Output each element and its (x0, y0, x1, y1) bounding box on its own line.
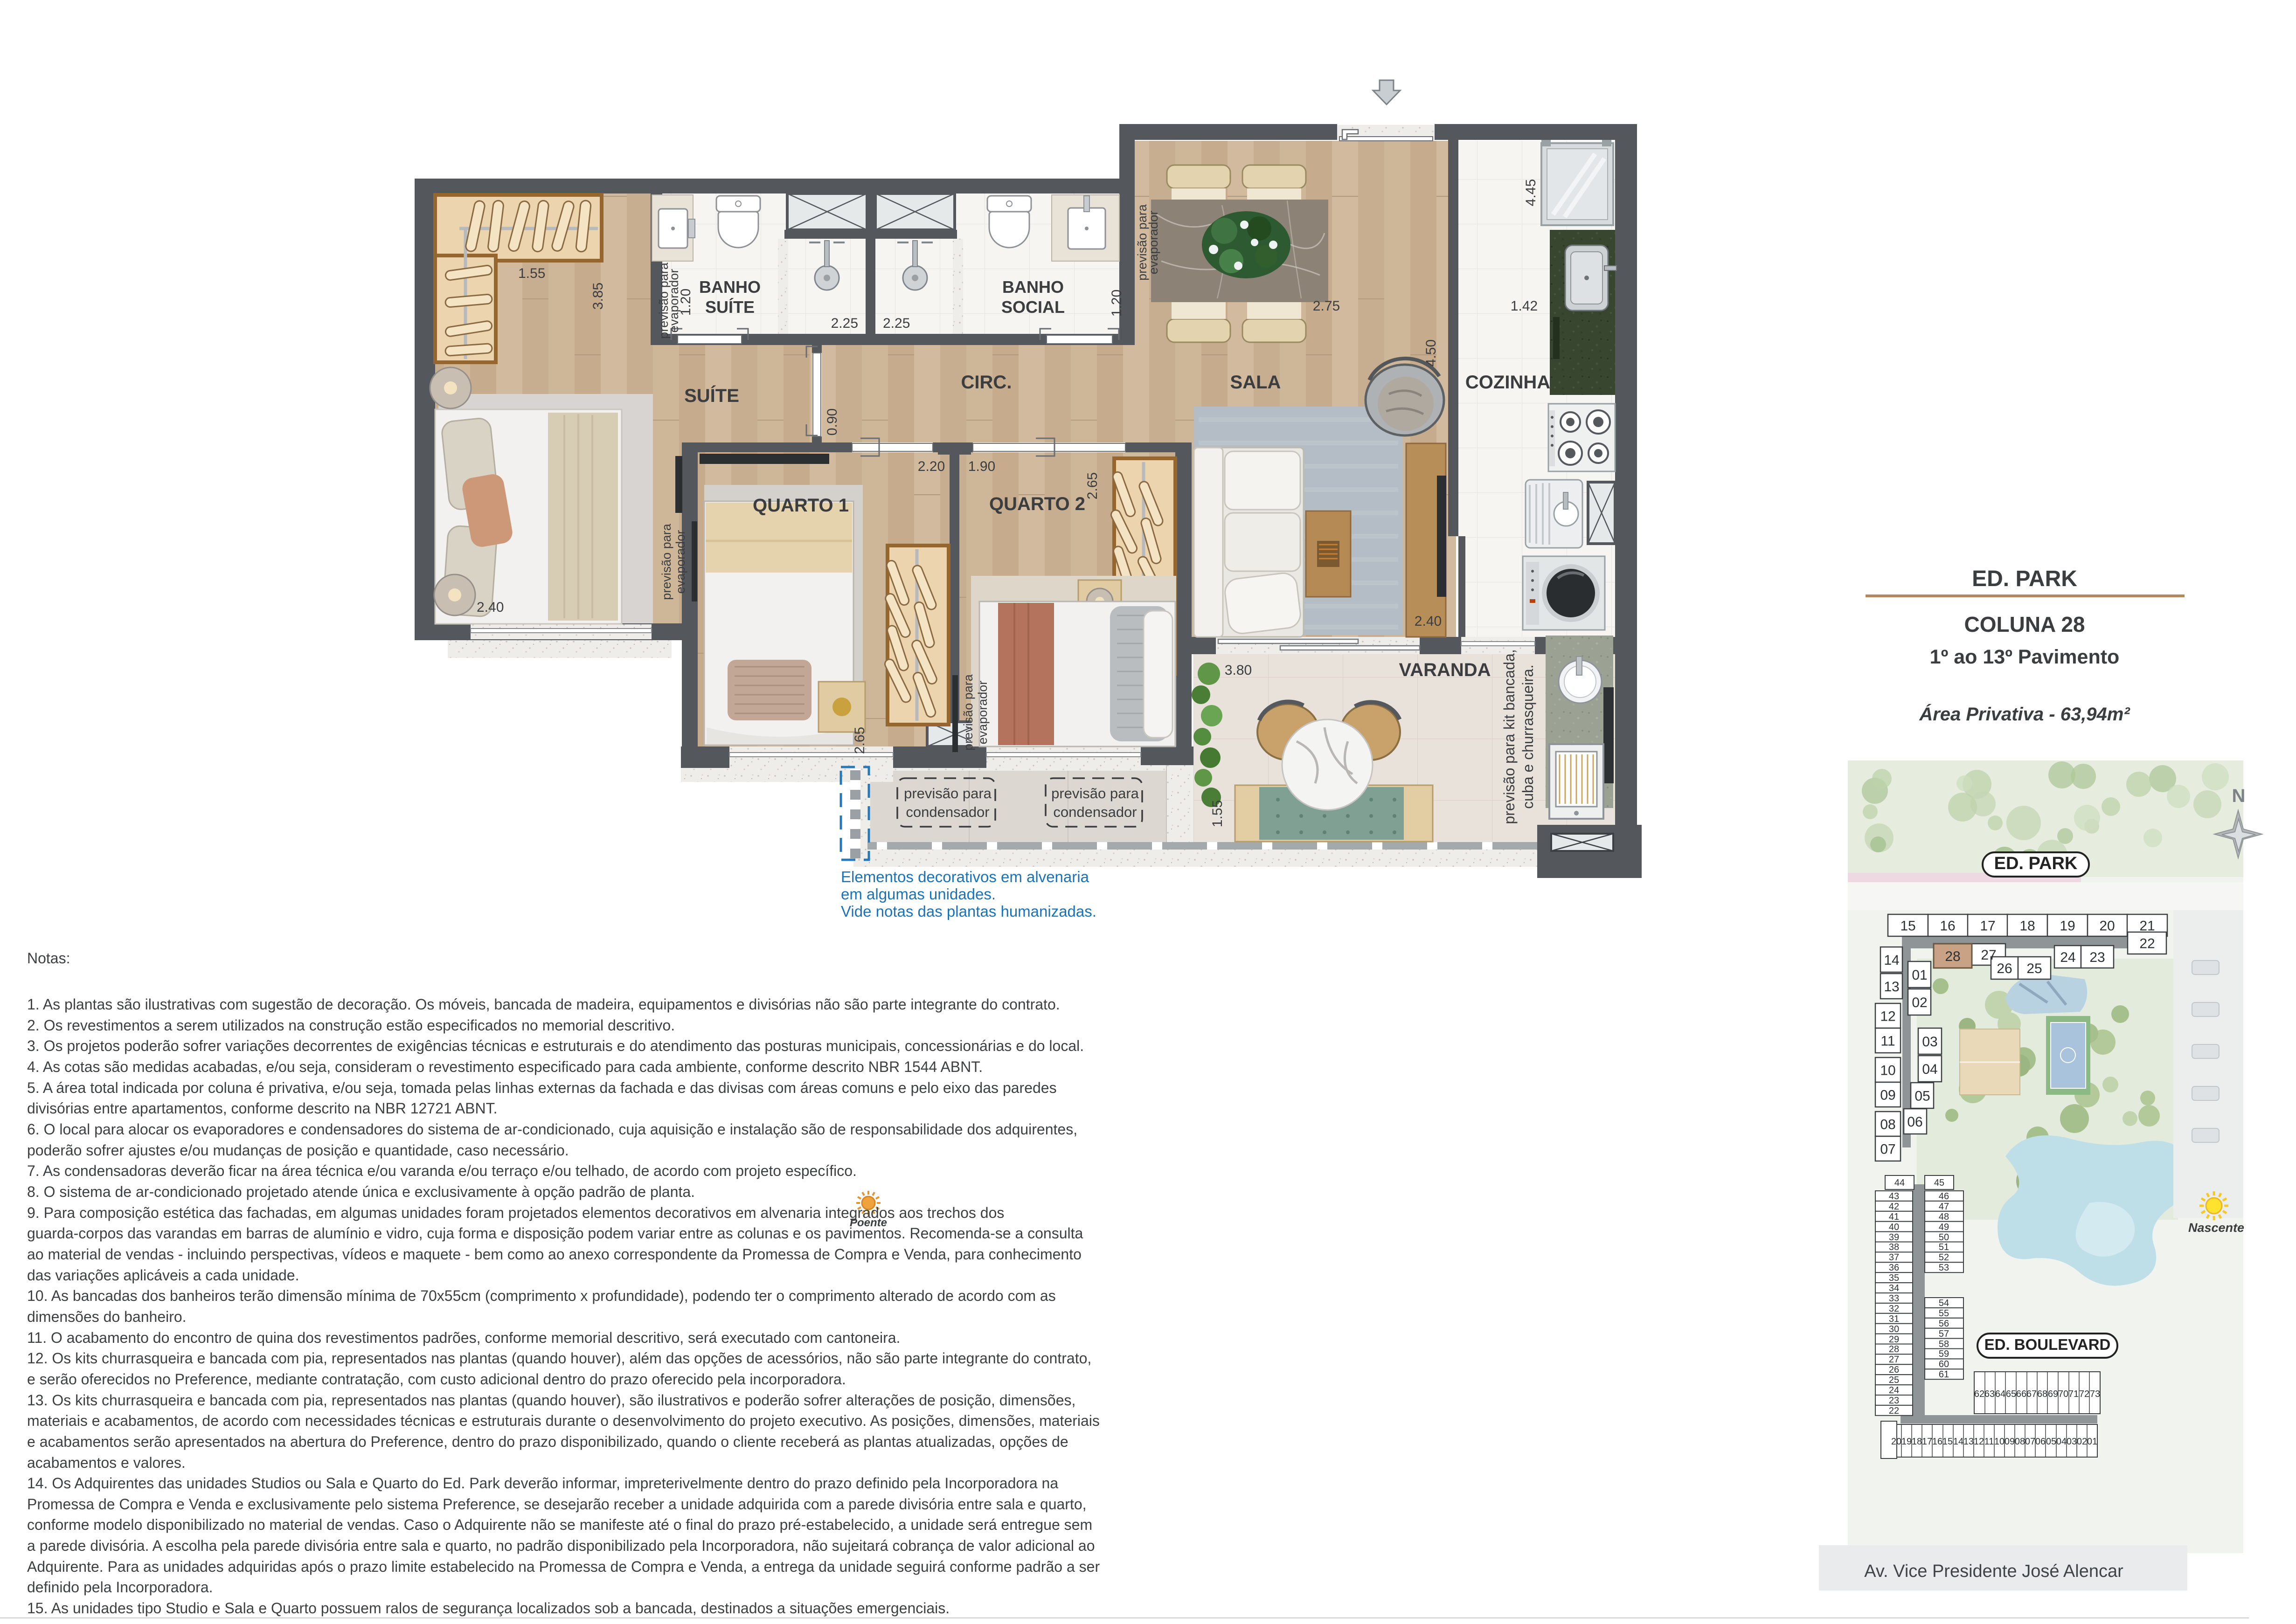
svg-text:21: 21 (2139, 919, 2155, 934)
svg-text:2.40: 2.40 (477, 600, 504, 615)
svg-text:2.75: 2.75 (1313, 298, 1340, 314)
svg-text:18: 18 (1912, 1437, 1922, 1447)
svg-text:06: 06 (1907, 1114, 1922, 1130)
svg-text:06: 06 (2035, 1437, 2046, 1447)
svg-text:cuba e churrasqueira.: cuba e churrasqueira. (1519, 664, 1536, 809)
svg-text:55: 55 (1939, 1308, 1949, 1319)
svg-text:31: 31 (1889, 1314, 1899, 1324)
svg-text:Av. Vice Presidente José Alenc: Av. Vice Presidente José Alencar (1864, 1562, 2123, 1581)
svg-text:SOCIAL: SOCIAL (1001, 297, 1065, 317)
svg-text:63: 63 (1984, 1389, 1995, 1399)
svg-text:previsão para: previsão para (1051, 785, 1139, 802)
svg-text:13: 13 (1884, 979, 1899, 995)
svg-text:18: 18 (2019, 919, 2035, 934)
svg-text:09: 09 (1880, 1088, 1895, 1103)
svg-text:24: 24 (2060, 950, 2075, 965)
svg-text:4.50: 4.50 (1423, 339, 1439, 366)
svg-text:04: 04 (1922, 1062, 1937, 1077)
svg-text:30: 30 (1889, 1324, 1899, 1334)
svg-text:60: 60 (1939, 1359, 1949, 1369)
svg-text:28: 28 (1889, 1344, 1899, 1354)
svg-text:19: 19 (2060, 919, 2075, 934)
svg-text:1º ao 13º Pavimento: 1º ao 13º Pavimento (1930, 646, 2120, 668)
svg-text:03: 03 (1922, 1034, 1937, 1050)
svg-text:4.45: 4.45 (1523, 179, 1539, 206)
svg-text:10: 10 (1880, 1063, 1895, 1078)
svg-text:1. As plantas são ilustrativas: 1. As plantas são ilustrativas com suges… (27, 996, 1060, 1013)
svg-text:acabamentos e valores.: acabamentos e valores. (27, 1454, 186, 1471)
svg-text:guarda-corpos das varandas em: guarda-corpos das varandas em barras de … (27, 1225, 1083, 1242)
svg-text:43: 43 (1889, 1191, 1899, 1202)
svg-text:17: 17 (1980, 919, 1995, 934)
svg-text:69: 69 (2048, 1389, 2058, 1399)
svg-text:08: 08 (2015, 1437, 2025, 1447)
svg-text:25: 25 (2026, 961, 2042, 976)
svg-text:58: 58 (1939, 1339, 1949, 1349)
svg-text:49: 49 (1939, 1222, 1949, 1232)
svg-text:definido pela Incorporadora.: definido pela Incorporadora. (27, 1579, 213, 1596)
svg-text:01: 01 (1912, 967, 1927, 983)
svg-text:07: 07 (1880, 1142, 1895, 1157)
svg-text:e acabamentos serão apresentad: e acabamentos serão apresentados na aber… (27, 1433, 1068, 1450)
svg-text:53: 53 (1939, 1263, 1949, 1273)
svg-text:37: 37 (1889, 1252, 1899, 1263)
svg-text:14: 14 (1884, 953, 1899, 968)
svg-text:29: 29 (1889, 1334, 1899, 1345)
svg-text:01: 01 (2087, 1437, 2097, 1447)
svg-text:0.90: 0.90 (825, 408, 840, 435)
svg-text:QUARTO 1: QUARTO 1 (753, 495, 849, 516)
svg-text:COZINHA: COZINHA (1465, 372, 1550, 393)
svg-text:previsão para: previsão para (961, 674, 975, 751)
svg-text:65: 65 (2006, 1389, 2016, 1399)
svg-text:04: 04 (2056, 1437, 2067, 1447)
svg-text:22: 22 (2139, 936, 2155, 952)
svg-text:11: 11 (1880, 1034, 1895, 1049)
svg-text:14. Os Adquirentes das unidade: 14. Os Adquirentes das unidades Studios … (27, 1475, 1058, 1492)
svg-text:62: 62 (1974, 1389, 1984, 1399)
svg-text:02: 02 (2077, 1437, 2087, 1447)
svg-text:20: 20 (1891, 1437, 1901, 1447)
svg-text:52: 52 (1939, 1252, 1949, 1263)
svg-text:10. As bancadas dos banheiros: 10. As bancadas dos banheiros terão dime… (27, 1287, 1056, 1304)
svg-text:6. O local para alocar os evap: 6. O local para alocar os evaporadores e… (27, 1121, 1077, 1138)
svg-text:10: 10 (1994, 1437, 2005, 1447)
svg-text:33: 33 (1889, 1293, 1899, 1304)
svg-text:39: 39 (1889, 1232, 1899, 1243)
svg-text:2.40: 2.40 (1415, 614, 1442, 629)
svg-text:09: 09 (2005, 1437, 2015, 1447)
svg-text:1.90: 1.90 (968, 459, 995, 474)
svg-text:SALA: SALA (1230, 372, 1281, 393)
svg-text:1.55: 1.55 (1210, 800, 1225, 827)
svg-text:BANHO: BANHO (1002, 277, 1064, 297)
svg-text:13. Os kits churrasqueira e ba: 13. Os kits churrasqueira e bancada com … (27, 1392, 1075, 1409)
svg-text:2.25: 2.25 (883, 316, 910, 331)
svg-text:3. Os projetos poderão sofrer: 3. Os projetos poderão sofrer variações … (27, 1037, 1084, 1054)
svg-text:07: 07 (2025, 1437, 2035, 1447)
svg-text:3.80: 3.80 (1225, 663, 1252, 678)
svg-text:2.65: 2.65 (852, 727, 867, 754)
svg-text:Área Privativa - 63,94m²: Área Privativa - 63,94m² (1919, 704, 2130, 725)
svg-text:51: 51 (1939, 1242, 1949, 1252)
svg-text:61: 61 (1939, 1369, 1949, 1380)
svg-text:Promessa de Compra e Venda e e: Promessa de Compra e Venda e exclusivame… (27, 1496, 1087, 1513)
svg-text:14: 14 (1953, 1437, 1963, 1447)
svg-text:02: 02 (1912, 995, 1927, 1010)
svg-text:previsão para: previsão para (659, 523, 673, 600)
svg-text:1.55: 1.55 (518, 266, 545, 281)
svg-text:7. As condensadoras deverão fi: 7. As condensadoras deverão ficar na áre… (27, 1162, 857, 1179)
svg-text:Elementos decorativos em alven: Elementos decorativos em alvenaria (841, 868, 1089, 885)
svg-text:35: 35 (1889, 1273, 1899, 1283)
svg-text:QUARTO 2: QUARTO 2 (989, 494, 1085, 514)
svg-text:34: 34 (1889, 1283, 1899, 1293)
svg-text:Adquirente. Para as unidades a: Adquirente. Para as unidades adquiridas … (27, 1558, 1100, 1575)
svg-text:16: 16 (1940, 919, 1955, 934)
svg-text:SUÍTE: SUÍTE (705, 297, 755, 317)
svg-text:47: 47 (1939, 1202, 1949, 1212)
svg-text:ED. BOULEVARD: ED. BOULEVARD (1984, 1336, 2111, 1353)
svg-text:27: 27 (1889, 1354, 1899, 1365)
svg-text:VARANDA: VARANDA (1399, 660, 1491, 680)
svg-text:1.42: 1.42 (1511, 298, 1538, 314)
svg-text:48: 48 (1939, 1212, 1949, 1222)
svg-text:previsão para: previsão para (904, 785, 992, 802)
svg-text:evaporador: evaporador (976, 681, 990, 745)
svg-text:condensador: condensador (1053, 804, 1137, 820)
svg-text:15: 15 (1942, 1437, 1953, 1447)
svg-text:BANHO: BANHO (699, 277, 761, 297)
svg-text:57: 57 (1939, 1329, 1949, 1339)
svg-text:56: 56 (1939, 1319, 1949, 1329)
svg-text:ED. PARK: ED. PARK (1972, 567, 2077, 591)
svg-text:36: 36 (1889, 1263, 1899, 1273)
svg-text:23: 23 (2089, 950, 2105, 965)
svg-text:em algumas unidades.: em algumas unidades. (841, 885, 996, 903)
svg-text:dimensões do banheiro.: dimensões do banheiro. (27, 1308, 187, 1325)
svg-text:CIRC.: CIRC. (961, 372, 1012, 393)
svg-text:42: 42 (1889, 1202, 1899, 1212)
svg-text:SUÍTE: SUÍTE (684, 385, 739, 406)
svg-text:38: 38 (1889, 1242, 1899, 1252)
svg-text:46: 46 (1939, 1191, 1949, 1202)
svg-text:poderão sofrer ajustes e/ou mu: poderão sofrer ajustes e/ou mudanças de … (27, 1142, 569, 1159)
svg-text:54: 54 (1939, 1298, 1949, 1308)
svg-text:03: 03 (2067, 1437, 2077, 1447)
svg-text:26: 26 (1889, 1365, 1899, 1375)
svg-text:59: 59 (1939, 1349, 1949, 1359)
svg-text:das variações aplicáveis a cad: das variações aplicáveis a cada unidade. (27, 1267, 299, 1284)
svg-text:27: 27 (1981, 947, 1996, 963)
svg-text:materiais e acabamentos, de ac: materiais e acabamentos, de acordo com n… (27, 1412, 1100, 1429)
svg-text:68: 68 (2037, 1389, 2047, 1399)
svg-text:23: 23 (1889, 1396, 1899, 1406)
svg-text:12. Os kits churrasqueira e ba: 12. Os kits churrasqueira e bancada com … (27, 1350, 1091, 1367)
svg-text:24: 24 (1889, 1385, 1899, 1396)
svg-text:2.20: 2.20 (918, 459, 945, 474)
svg-text:12: 12 (1880, 1009, 1895, 1024)
svg-text:2. Os revestimentos a serem ut: 2. Os revestimentos a serem utilizados n… (27, 1017, 675, 1034)
svg-text:N: N (2232, 786, 2246, 806)
svg-text:50: 50 (1939, 1232, 1949, 1243)
svg-text:previsão para kit bancada,: previsão para kit bancada, (1501, 649, 1518, 824)
svg-text:divisórias entre apartamentos,: divisórias entre apartamentos, conforme … (27, 1100, 498, 1117)
svg-text:12: 12 (1974, 1437, 1984, 1447)
svg-text:66: 66 (2016, 1389, 2026, 1399)
svg-text:conforme modelo disponibilizad: conforme modelo disponibilizado no mater… (27, 1516, 1092, 1533)
svg-text:08: 08 (1880, 1117, 1895, 1133)
svg-text:ED. PARK: ED. PARK (1994, 854, 2078, 873)
svg-text:evaporador: evaporador (667, 269, 681, 333)
svg-text:3.85: 3.85 (590, 283, 606, 310)
svg-text:condensador: condensador (906, 804, 989, 820)
svg-text:8. O sistema de ar-condicionad: 8. O sistema de ar-condicionado projetad… (27, 1183, 695, 1200)
svg-text:COLUNA 28: COLUNA 28 (1964, 612, 2085, 636)
svg-text:20: 20 (2099, 919, 2115, 934)
svg-text:05: 05 (2046, 1437, 2056, 1447)
svg-text:2.25: 2.25 (831, 316, 858, 331)
svg-text:73: 73 (2090, 1389, 2100, 1399)
svg-text:Notas:: Notas: (27, 950, 70, 967)
svg-text:70: 70 (2058, 1389, 2068, 1399)
svg-text:5. A área total indicada por c: 5. A área total indicada por coluna é pr… (27, 1079, 1057, 1096)
svg-text:9. Para composição estética da: 9. Para composição estética das fachadas… (27, 1204, 1004, 1221)
svg-text:41: 41 (1889, 1212, 1899, 1222)
svg-text:26: 26 (1997, 961, 2012, 976)
svg-text:2.65: 2.65 (1085, 472, 1100, 499)
svg-text:a parede divisória. A escolha: a parede divisória. A escolha pela pared… (27, 1537, 1095, 1554)
svg-text:17: 17 (1922, 1437, 1932, 1447)
svg-text:44: 44 (1894, 1178, 1905, 1188)
svg-text:19: 19 (1901, 1437, 1912, 1447)
svg-text:evaporador: evaporador (673, 530, 687, 594)
svg-text:evaporador: evaporador (1146, 211, 1160, 275)
svg-text:05: 05 (1914, 1089, 1930, 1104)
svg-text:Vide notas das plantas humaniz: Vide notas das plantas humanizadas. (841, 903, 1096, 920)
svg-text:ao material de vendas - inclui: ao material de vendas - incluindo perspe… (27, 1246, 1082, 1263)
svg-text:45: 45 (1934, 1178, 1944, 1188)
svg-text:22: 22 (1889, 1406, 1899, 1416)
svg-text:16: 16 (1932, 1437, 1942, 1447)
svg-text:67: 67 (2026, 1389, 2037, 1399)
svg-text:32: 32 (1889, 1304, 1899, 1314)
svg-text:11: 11 (1984, 1437, 1994, 1447)
svg-text:71: 71 (2068, 1389, 2079, 1399)
svg-text:e serão oferecidos no Preferen: e serão oferecidos no Preference, median… (27, 1371, 846, 1388)
svg-text:64: 64 (1995, 1389, 2005, 1399)
svg-text:40: 40 (1889, 1222, 1899, 1232)
svg-text:15. As unidades tipo Studio e: 15. As unidades tipo Studio e Sala e Qua… (27, 1600, 950, 1617)
svg-text:28: 28 (1945, 949, 1960, 964)
svg-text:1.20: 1.20 (1109, 290, 1124, 317)
svg-text:Nascente: Nascente (2188, 1221, 2244, 1235)
svg-text:11. O acabamento do encontro d: 11. O acabamento do encontro de quina do… (27, 1329, 900, 1346)
svg-text:4. As cotas são medidas acabad: 4. As cotas são medidas acabadas, e/ou s… (27, 1058, 983, 1075)
svg-text:72: 72 (2079, 1389, 2089, 1399)
svg-text:25: 25 (1889, 1375, 1899, 1385)
svg-text:13: 13 (1963, 1437, 1974, 1447)
svg-text:15: 15 (1900, 919, 1915, 934)
